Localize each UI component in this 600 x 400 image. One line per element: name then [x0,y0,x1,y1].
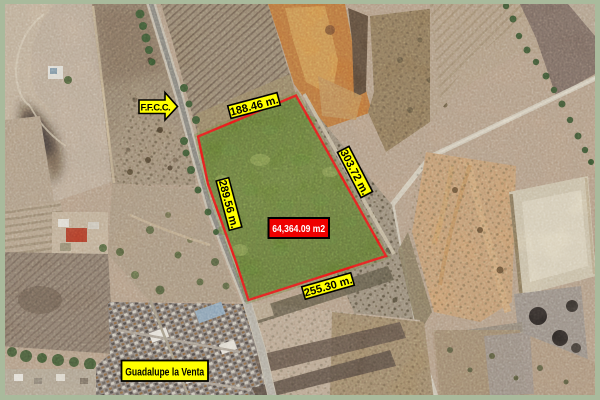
svg-text:Guadalupe la Venta: Guadalupe la Venta [125,367,205,379]
svg-text:64,364.09 m2: 64,364.09 m2 [272,224,325,235]
svg-text:F.F.C.C.: F.F.C.C. [141,102,171,112]
